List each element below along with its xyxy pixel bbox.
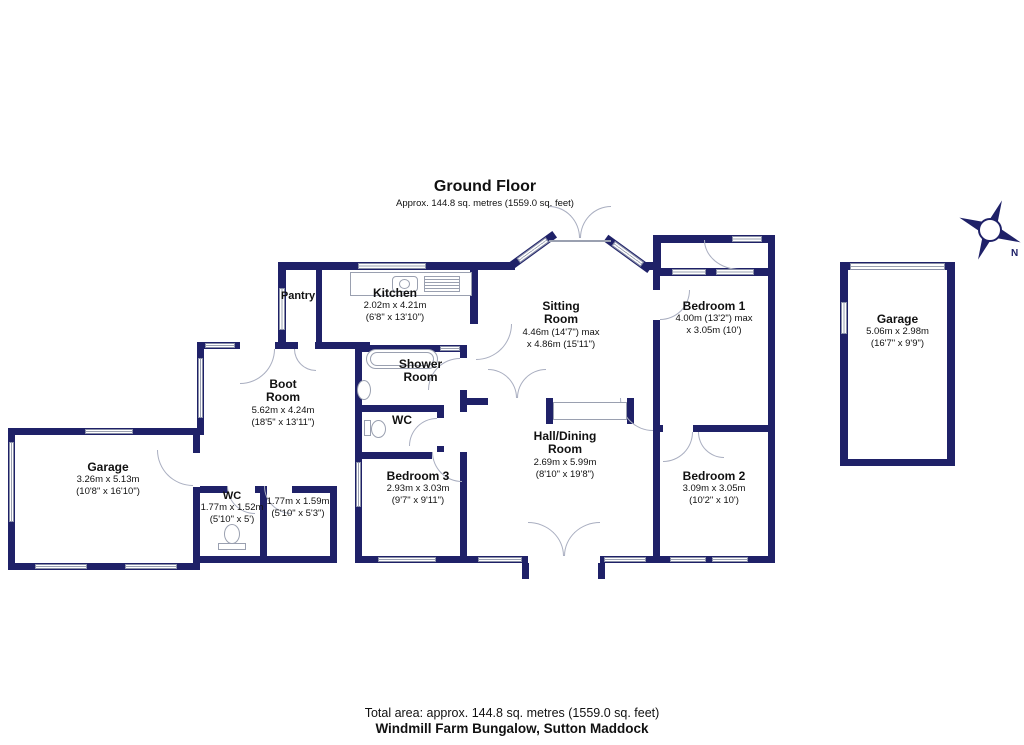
porch-stub	[522, 563, 529, 579]
window	[672, 269, 706, 275]
window	[85, 429, 133, 434]
door-arc	[704, 240, 740, 270]
room-label-boot-room: Boot Room 5.62m x 4.24m (18'5" x 13'11")	[223, 378, 343, 429]
room-label-store: 1.77m x 1.59m (5'10" x 5'3")	[258, 496, 338, 520]
porch-stub	[598, 563, 605, 579]
floor-title: Ground Floor	[285, 178, 685, 196]
room-label-garage-left: Garage 3.26m x 5.13m (10'8" x 16'10")	[48, 461, 168, 498]
room-dims-imperial: (18'5" x 13'11")	[223, 417, 343, 429]
room-name: Garage	[48, 461, 168, 474]
window	[125, 564, 177, 569]
window	[612, 241, 645, 267]
window	[517, 237, 550, 263]
room-dims-metric: 2.02m x 4.21m	[335, 300, 455, 312]
window	[604, 557, 646, 562]
room-name: Shower	[378, 358, 463, 371]
wall	[840, 262, 848, 466]
toilet-bowl	[224, 524, 240, 544]
room-dims-metric: 4.00m (13'2") max	[654, 313, 774, 325]
wall	[200, 556, 337, 563]
door-threshold	[549, 240, 611, 242]
door-arc	[698, 432, 724, 458]
window	[35, 564, 87, 569]
window	[358, 263, 426, 269]
door-arc	[549, 206, 580, 238]
door-arc	[528, 522, 564, 556]
wall	[355, 452, 432, 459]
room-dims-imperial: x 3.05m (10')	[654, 325, 774, 337]
window	[716, 269, 754, 275]
wall	[947, 262, 955, 466]
room-name: Room	[223, 391, 343, 404]
wall	[460, 345, 467, 358]
room-label-garage-right: Garage 5.06m x 2.98m (16'7" x 9'9")	[840, 313, 955, 350]
room-label-bedroom1: Bedroom 1 4.00m (13'2") max x 3.05m (10'…	[654, 300, 774, 337]
window	[440, 346, 460, 351]
room-name: WC	[382, 414, 422, 427]
room-name: Pantry	[268, 290, 328, 302]
room-name: Boot	[223, 378, 343, 391]
room-name: Room	[505, 443, 625, 456]
window	[198, 358, 203, 418]
property-name: Windmill Farm Bungalow, Sutton Maddock	[0, 721, 1024, 736]
room-name: Bedroom 2	[654, 470, 774, 483]
wall	[840, 459, 955, 466]
window	[478, 557, 522, 562]
room-dims-metric: 2.69m x 5.99m	[505, 457, 625, 469]
compass-north-label: N	[1011, 248, 1018, 259]
room-name: Bedroom 1	[654, 300, 774, 313]
window	[378, 557, 436, 562]
room-dims-imperial: (8'10" x 19'8")	[505, 469, 625, 481]
wall	[460, 398, 488, 405]
door-arc	[580, 206, 611, 238]
plan-footer: Total area: approx. 144.8 sq. metres (15…	[0, 706, 1024, 736]
wall	[437, 405, 444, 418]
room-dims-metric: 1.77m x 1.59m	[258, 496, 338, 508]
room-name: Room	[500, 313, 622, 326]
room-label-bedroom3: Bedroom 3 2.93m x 3.03m (9'7" x 9'11")	[358, 470, 478, 507]
toilet-cistern	[218, 543, 246, 550]
room-label-hall: Hall/Dining Room 2.69m x 5.99m (8'10" x …	[505, 430, 625, 481]
wall	[693, 425, 775, 432]
wall	[316, 270, 322, 342]
toilet-cistern	[364, 420, 371, 436]
room-dims-metric: 4.46m (14'7") max	[500, 327, 622, 339]
room-dims-metric: 2.93m x 3.03m	[358, 483, 478, 495]
door-arc	[564, 522, 600, 556]
room-name: Room	[378, 371, 463, 384]
room-label-wc-mid: WC	[382, 414, 422, 427]
wall	[653, 425, 663, 432]
wall	[355, 405, 444, 412]
room-name: Kitchen	[335, 287, 455, 300]
room-label-bedroom2: Bedroom 2 3.09m x 3.05m (10'2" x 10')	[654, 470, 774, 507]
room-dims-imperial: (10'2" x 10')	[654, 495, 774, 507]
window	[670, 557, 706, 562]
room-name: Garage	[840, 313, 955, 326]
garage-door	[850, 263, 945, 270]
floor-plan: Ground Floor Approx. 144.8 sq. metres (1…	[0, 0, 1024, 745]
room-dims-imperial: (16'7" x 9'9")	[840, 338, 955, 350]
room-label-shower-room: Shower Room	[378, 358, 463, 385]
total-area-text: Total area: approx. 144.8 sq. metres (15…	[0, 706, 1024, 720]
door-arc	[294, 349, 316, 371]
room-dims-metric: 3.09m x 3.05m	[654, 483, 774, 495]
floor-area-subtitle: Approx. 144.8 sq. metres (1559.0 sq. fee…	[285, 198, 685, 209]
alcove	[553, 402, 627, 420]
wall	[275, 342, 298, 349]
room-dims-imperial: (9'7" x 9'11")	[358, 495, 478, 507]
door-arc	[663, 432, 693, 462]
room-dims-metric: 5.06m x 2.98m	[840, 326, 955, 338]
basin	[357, 380, 371, 400]
room-dims-metric: 5.62m x 4.24m	[223, 405, 343, 417]
wall	[193, 428, 200, 453]
room-dims-imperial: x 4.86m (15'11")	[500, 339, 622, 351]
window	[9, 442, 14, 522]
floor-header: Ground Floor Approx. 144.8 sq. metres (1…	[285, 178, 685, 209]
room-dims-imperial: (5'10" x 5'3")	[258, 508, 338, 520]
room-name: Sitting	[500, 300, 622, 313]
room-label-sitting-room: Sitting Room 4.46m (14'7") max x 4.86m (…	[500, 300, 622, 351]
door-arc	[488, 369, 517, 398]
wall	[546, 398, 553, 424]
window	[732, 236, 762, 242]
room-label-pantry: Pantry	[268, 290, 328, 302]
wall	[653, 268, 660, 290]
window	[205, 343, 235, 348]
room-name: Bedroom 3	[358, 470, 478, 483]
wall	[768, 235, 775, 563]
room-dims-metric: 3.26m x 5.13m	[48, 474, 168, 486]
room-dims-imperial: (6'8" x 13'10")	[335, 312, 455, 324]
door-arc	[517, 369, 546, 398]
room-dims-imperial: (10'8" x 16'10")	[48, 486, 168, 498]
compass-icon: N	[955, 198, 1024, 262]
room-name: Hall/Dining	[505, 430, 625, 443]
room-label-kitchen: Kitchen 2.02m x 4.21m (6'8" x 13'10")	[335, 287, 455, 324]
window	[712, 557, 748, 562]
